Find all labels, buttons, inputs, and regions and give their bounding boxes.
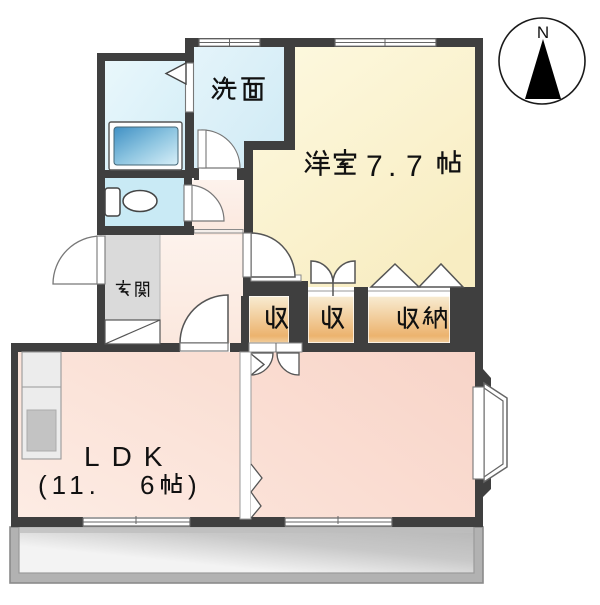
svg-text:7: 7 xyxy=(406,150,423,183)
svg-text:N: N xyxy=(537,23,549,42)
svg-text:6: 6 xyxy=(140,470,154,500)
svg-text:LDK: LDK xyxy=(84,441,174,472)
svg-text:(11.: (11. xyxy=(38,470,101,500)
svg-text:7: 7 xyxy=(366,150,383,183)
svg-text:.: . xyxy=(388,150,396,183)
svg-text:): ) xyxy=(188,470,197,500)
